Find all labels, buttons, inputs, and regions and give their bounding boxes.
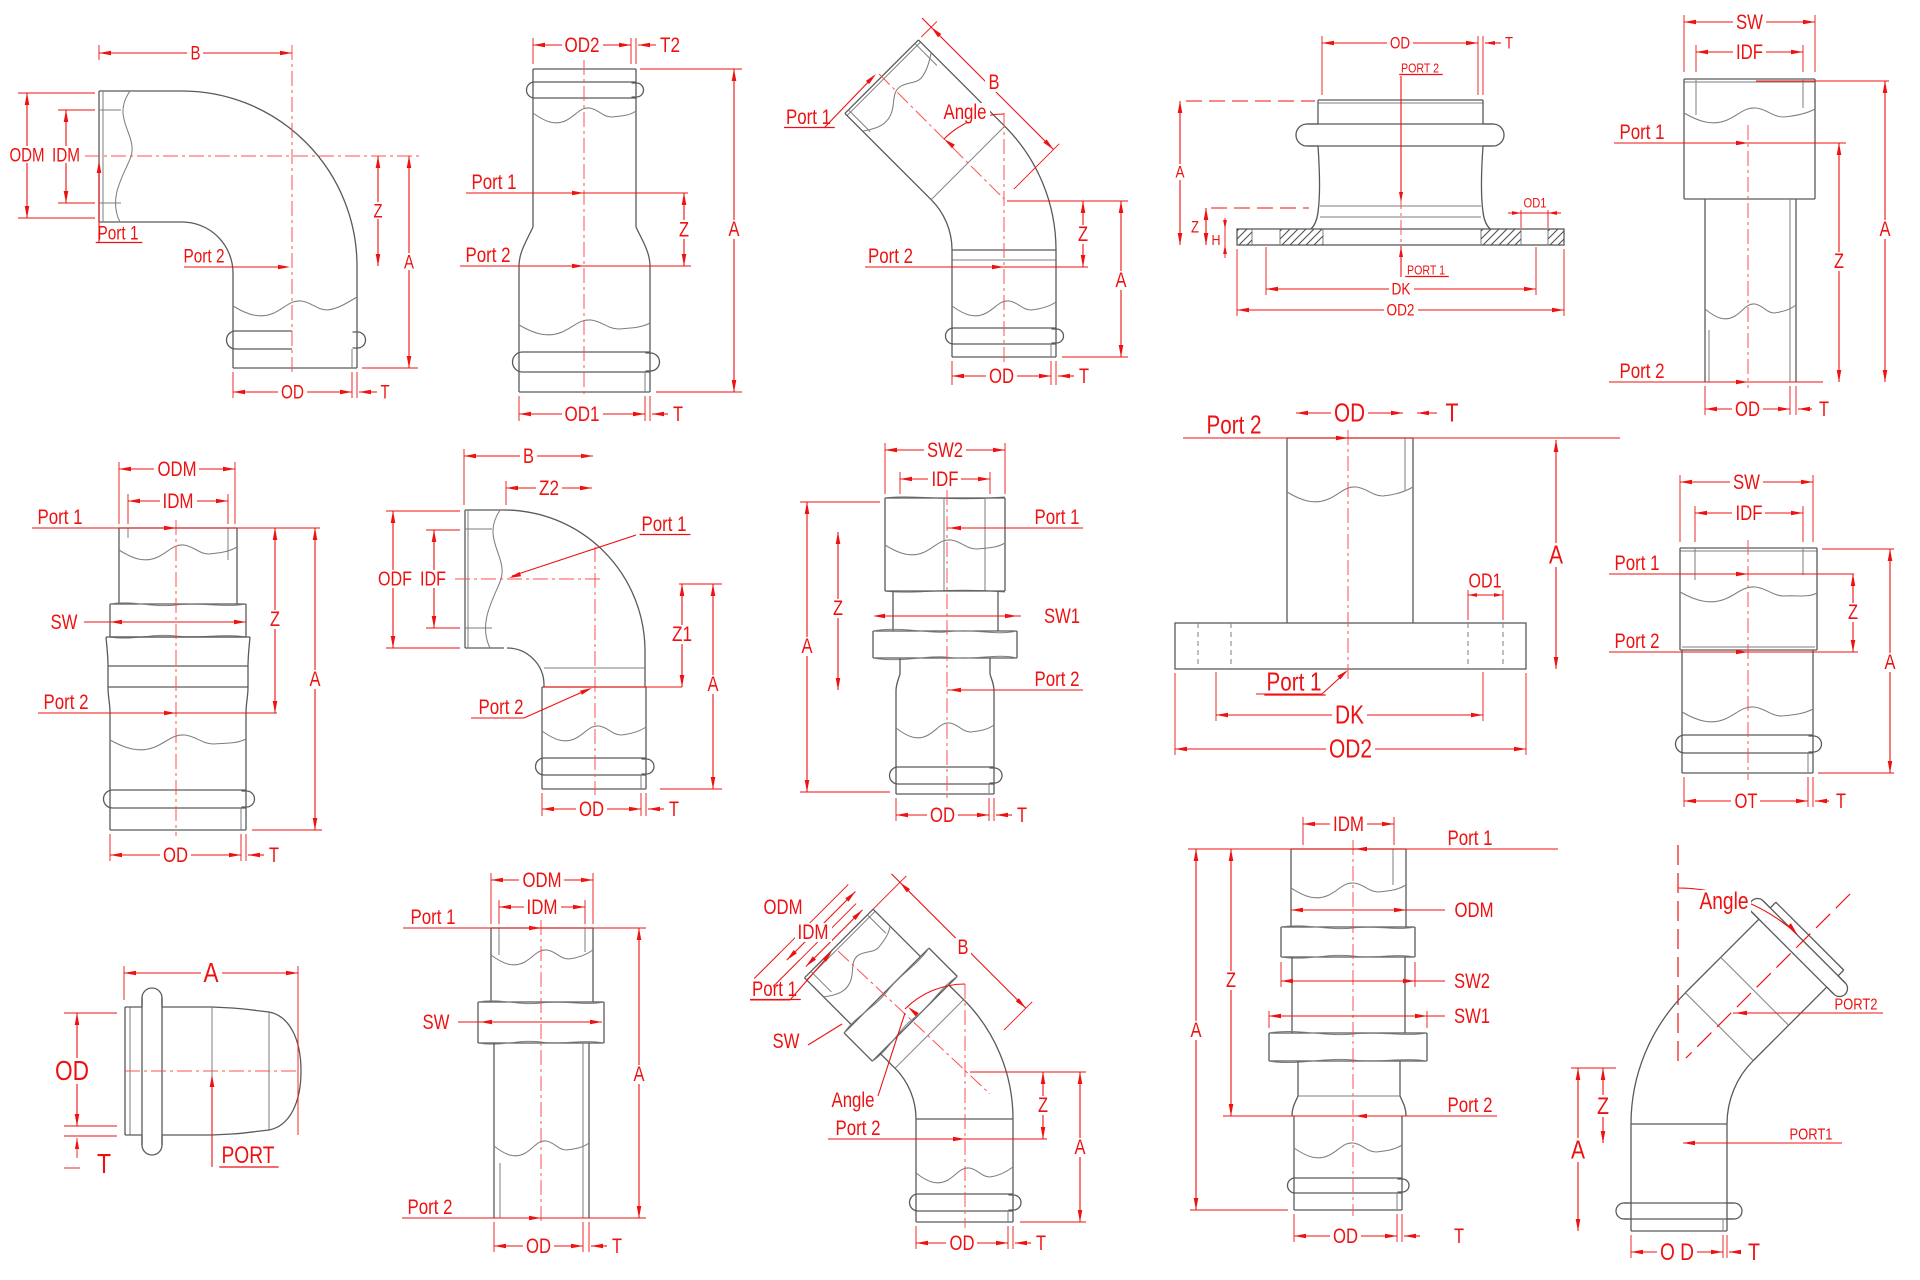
svg-text:O D: O D xyxy=(1660,1239,1694,1266)
svg-text:ODM: ODM xyxy=(158,458,197,481)
svg-text:Port 2: Port 2 xyxy=(836,1117,881,1140)
svg-text:IDF: IDF xyxy=(932,468,959,491)
svg-text:IDM: IDM xyxy=(798,921,829,944)
svg-text:A: A xyxy=(1176,163,1186,182)
svg-text:Port 2: Port 2 xyxy=(1207,410,1262,440)
svg-text:B: B xyxy=(958,936,969,959)
svg-text:DK: DK xyxy=(1335,700,1365,730)
svg-text:OD2: OD2 xyxy=(1329,734,1372,764)
svg-text:T: T xyxy=(669,798,679,821)
svg-text:SW: SW xyxy=(773,1030,800,1053)
svg-text:T: T xyxy=(1505,34,1513,53)
svg-text:T: T xyxy=(269,844,279,867)
svg-text:OD: OD xyxy=(1333,1225,1358,1248)
svg-text:Port 1: Port 1 xyxy=(38,506,83,529)
svg-text:OD: OD xyxy=(950,1232,975,1255)
svg-text:Z: Z xyxy=(1191,218,1199,237)
svg-text:SW: SW xyxy=(51,611,78,634)
svg-text:Z: Z xyxy=(1597,1093,1609,1120)
svg-text:A: A xyxy=(310,668,321,691)
svg-text:ODM: ODM xyxy=(1455,899,1494,922)
svg-text:Z: Z xyxy=(1226,969,1236,992)
svg-text:ODM: ODM xyxy=(10,145,45,166)
svg-text:B: B xyxy=(191,43,201,64)
svg-text:Z: Z xyxy=(1834,250,1844,273)
svg-text:OD: OD xyxy=(163,844,188,867)
svg-text:OD: OD xyxy=(526,1235,551,1258)
svg-text:OD: OD xyxy=(281,382,304,403)
svg-text:DK: DK xyxy=(1392,280,1412,299)
svg-text:A: A xyxy=(1191,1019,1202,1042)
svg-text:OD2: OD2 xyxy=(1387,301,1415,320)
svg-text:Port 2: Port 2 xyxy=(1615,630,1660,653)
svg-text:Port 2: Port 2 xyxy=(868,245,913,268)
svg-text:Z: Z xyxy=(679,218,689,241)
svg-text:B: B xyxy=(989,71,1000,94)
svg-text:IDF: IDF xyxy=(420,569,446,591)
svg-text:IDM: IDM xyxy=(1333,813,1364,836)
svg-text:A: A xyxy=(1885,651,1896,674)
svg-text:PORT2: PORT2 xyxy=(1835,996,1878,1013)
svg-text:Port 2: Port 2 xyxy=(44,691,89,714)
svg-text:PORT 2: PORT 2 xyxy=(1401,60,1439,75)
svg-text:T: T xyxy=(1836,790,1846,813)
svg-text:A: A xyxy=(204,957,219,988)
svg-text:T: T xyxy=(1017,804,1027,827)
svg-text:OD2: OD2 xyxy=(565,34,600,57)
svg-text:A: A xyxy=(1571,1135,1586,1165)
svg-text:SW2: SW2 xyxy=(1454,970,1490,993)
svg-text:Port 1: Port 1 xyxy=(1448,827,1493,850)
svg-text:Port 2: Port 2 xyxy=(1620,360,1665,383)
svg-text:Angle: Angle xyxy=(832,1089,875,1112)
svg-text:Port 2: Port 2 xyxy=(184,246,225,267)
svg-text:OD: OD xyxy=(1334,398,1365,428)
svg-text:Port 1: Port 1 xyxy=(98,223,139,244)
svg-text:IDM: IDM xyxy=(52,145,80,166)
svg-text:Port 1: Port 1 xyxy=(411,906,456,929)
svg-text:Port 1: Port 1 xyxy=(752,978,797,1001)
svg-text:T: T xyxy=(1748,1239,1760,1266)
svg-text:T: T xyxy=(1819,398,1829,421)
svg-text:Angle: Angle xyxy=(1700,888,1749,915)
svg-text:Port 2: Port 2 xyxy=(408,1196,453,1219)
svg-text:A: A xyxy=(1116,269,1127,292)
svg-text:OT: OT xyxy=(1735,790,1758,813)
svg-text:T: T xyxy=(612,1235,622,1258)
svg-text:Z: Z xyxy=(374,201,383,222)
svg-text:Z: Z xyxy=(1078,223,1088,246)
svg-text:Port 1: Port 1 xyxy=(786,106,831,129)
svg-text:IDF: IDF xyxy=(1736,502,1763,525)
svg-text:OD1: OD1 xyxy=(565,403,600,426)
svg-text:SW: SW xyxy=(423,1011,450,1034)
svg-text:Z: Z xyxy=(1038,1094,1048,1117)
svg-text:Port 1: Port 1 xyxy=(472,171,517,194)
svg-text:Z: Z xyxy=(833,597,843,620)
svg-text:SW: SW xyxy=(1736,11,1763,34)
svg-text:PORT: PORT xyxy=(222,1142,275,1169)
svg-text:A: A xyxy=(404,252,414,273)
svg-text:T: T xyxy=(1446,398,1459,428)
svg-text:B: B xyxy=(523,445,534,468)
svg-text:Port 1: Port 1 xyxy=(642,513,687,536)
svg-text:Port 2: Port 2 xyxy=(466,244,511,267)
svg-text:A: A xyxy=(1075,1136,1086,1159)
svg-text:OD1: OD1 xyxy=(1469,571,1502,593)
svg-text:SW1: SW1 xyxy=(1454,1005,1490,1028)
svg-text:T: T xyxy=(97,1148,111,1179)
svg-text:T: T xyxy=(673,403,683,426)
svg-text:T: T xyxy=(1036,1232,1046,1255)
svg-text:OD: OD xyxy=(1390,34,1410,53)
svg-text:Z: Z xyxy=(270,608,280,631)
svg-text:A: A xyxy=(1880,218,1891,241)
svg-text:A: A xyxy=(729,218,740,241)
svg-text:ODM: ODM xyxy=(523,869,562,892)
svg-text:IDF: IDF xyxy=(1736,41,1763,64)
svg-text:SW2: SW2 xyxy=(927,439,963,462)
svg-text:T: T xyxy=(1079,365,1089,388)
svg-text:T: T xyxy=(381,382,390,403)
svg-text:OD: OD xyxy=(55,1055,89,1086)
svg-text:A: A xyxy=(708,673,719,696)
svg-text:PORT1: PORT1 xyxy=(1790,1126,1833,1143)
svg-text:Port 2: Port 2 xyxy=(1448,1094,1493,1117)
svg-text:ODM: ODM xyxy=(764,896,803,919)
svg-text:H: H xyxy=(1212,232,1221,249)
svg-text:SW: SW xyxy=(1733,471,1760,494)
svg-text:Port 2: Port 2 xyxy=(1035,668,1080,691)
svg-text:SW1: SW1 xyxy=(1044,605,1080,628)
svg-text:A: A xyxy=(634,1063,645,1086)
svg-text:T2: T2 xyxy=(660,34,680,57)
svg-text:Port 1: Port 1 xyxy=(1267,667,1322,697)
svg-text:IDM: IDM xyxy=(527,896,558,919)
svg-text:ODF: ODF xyxy=(378,569,412,591)
svg-text:Z2: Z2 xyxy=(539,477,559,500)
svg-text:OD: OD xyxy=(1735,398,1760,421)
svg-text:Port 1: Port 1 xyxy=(1615,552,1660,575)
svg-text:IDM: IDM xyxy=(163,490,194,513)
svg-text:A: A xyxy=(802,635,813,658)
svg-text:T: T xyxy=(1454,1225,1464,1248)
svg-text:A: A xyxy=(1549,540,1564,570)
svg-text:Z: Z xyxy=(1848,601,1858,624)
svg-text:Z1: Z1 xyxy=(672,623,692,646)
svg-text:Angle: Angle xyxy=(944,101,987,124)
svg-text:OD: OD xyxy=(989,365,1014,388)
svg-text:Port 1: Port 1 xyxy=(1035,506,1080,529)
svg-text:Port 2: Port 2 xyxy=(479,696,524,719)
svg-text:PORT 1: PORT 1 xyxy=(1407,262,1445,277)
svg-text:OD: OD xyxy=(579,798,604,821)
svg-text:OD: OD xyxy=(930,804,955,827)
svg-text:OD1: OD1 xyxy=(1524,195,1547,211)
svg-text:Port 1: Port 1 xyxy=(1620,121,1665,144)
